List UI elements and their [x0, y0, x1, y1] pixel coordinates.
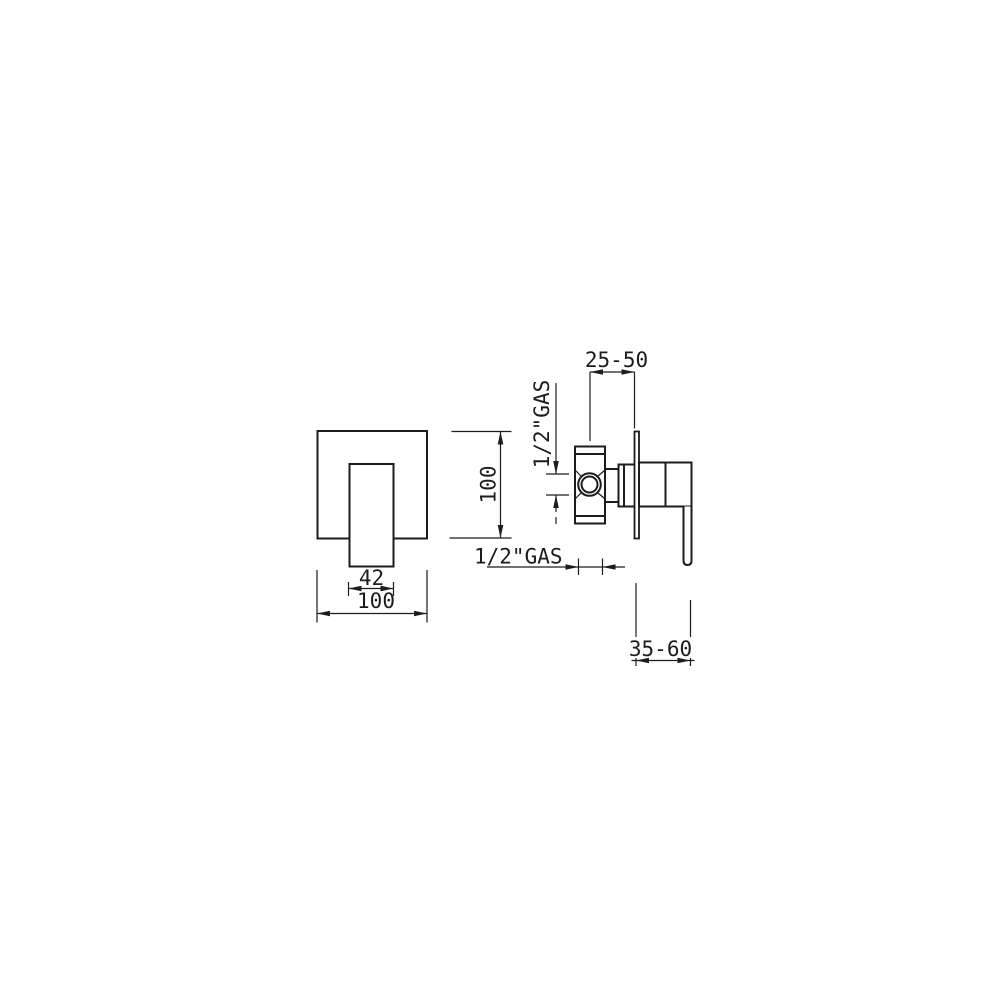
- front-plate-width-label: 100: [357, 589, 395, 613]
- drawing-page: 42 100 100: [0, 0, 1000, 1000]
- handle-projection-dimension: 35-60: [626, 583, 695, 666]
- front-handle-width-label: 42: [359, 566, 384, 590]
- handle-collar: [619, 465, 636, 507]
- valve-body: [575, 447, 605, 524]
- arrowhead-left: [603, 564, 616, 570]
- arrowhead-down: [553, 461, 559, 474]
- arrowhead-right: [414, 611, 427, 617]
- handle-projection-label: 35-60: [629, 637, 692, 661]
- side-view: 25-50 1/2"GAS 1/2"GAS: [474, 348, 695, 666]
- outlet-thread-label: 1/2"GAS: [474, 545, 563, 569]
- front-view: 42 100 100: [317, 431, 512, 623]
- outlet-thread-dimension: 1/2"GAS: [474, 545, 625, 576]
- valve-neck: [605, 469, 619, 502]
- arrowhead-right: [566, 564, 579, 570]
- handle-grip: [639, 463, 666, 507]
- arrowhead-down: [498, 525, 504, 538]
- mounting-depth-dimension: 25-50: [585, 348, 648, 441]
- arrowhead-up: [498, 432, 504, 445]
- technical-drawing-canvas: 42 100 100: [0, 0, 1000, 1000]
- mounting-depth-label: 25-50: [585, 348, 648, 372]
- front-plate-height-dimension: 100: [450, 432, 512, 539]
- inlet-thread-dimension: 1/2"GAS: [530, 380, 569, 528]
- handle-head: [666, 463, 692, 507]
- handle-lever: [684, 507, 692, 566]
- arrowhead-left: [317, 611, 330, 617]
- front-plate-height-label: 100: [477, 466, 501, 504]
- inlet-thread-label: 1/2"GAS: [530, 380, 554, 469]
- front-handle-outline: [350, 464, 394, 567]
